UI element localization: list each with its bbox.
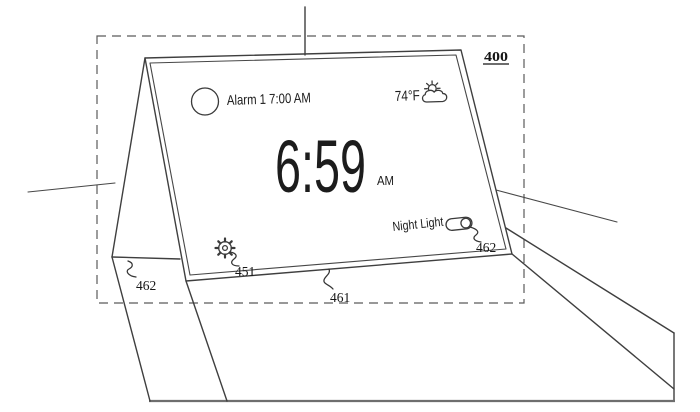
sun-behind-cloud-icon [422, 81, 447, 103]
screen-content: Alarm 1 7:00 AM 74°F 6:59 AM [192, 81, 473, 258]
callout-label-451: 451 [235, 264, 255, 279]
clock-time: 6:59 [275, 125, 366, 208]
patent-figure: Alarm 1 7:00 AM 74°F 6:59 AM [0, 0, 700, 412]
temperature-label: 74°F [395, 88, 421, 105]
night-light-label: Night Light [392, 214, 445, 234]
table-surface [28, 183, 675, 401]
figure-canvas: Alarm 1 7:00 AM 74°F 6:59 AM [0, 0, 700, 412]
leader-squiggle-461 [324, 269, 333, 289]
clock-meridiem: AM [377, 173, 394, 188]
figure-number-label: 400 [484, 49, 508, 64]
callout-label-461: 461 [330, 290, 350, 305]
device-back-panel-bottom-edge [112, 257, 180, 259]
table-back-edge-left [28, 183, 115, 192]
table-front-right-edge [512, 254, 674, 389]
table-top-right-edge [506, 228, 674, 333]
callout-label-462-panel: 462 [136, 278, 156, 293]
leader-squiggle-462-panel [127, 261, 136, 277]
callout-label-462-toggle: 462 [476, 240, 496, 255]
night-light-toggle[interactable] [445, 217, 472, 231]
device-back-panel-edge [112, 58, 145, 257]
settings-gear-icon[interactable] [216, 239, 235, 258]
alarm-indicator-circle-icon[interactable] [192, 88, 219, 115]
alarm-label[interactable]: Alarm 1 7:00 AM [227, 89, 311, 108]
table-left-edge-b [186, 281, 227, 401]
table-back-edge-right [496, 190, 617, 222]
